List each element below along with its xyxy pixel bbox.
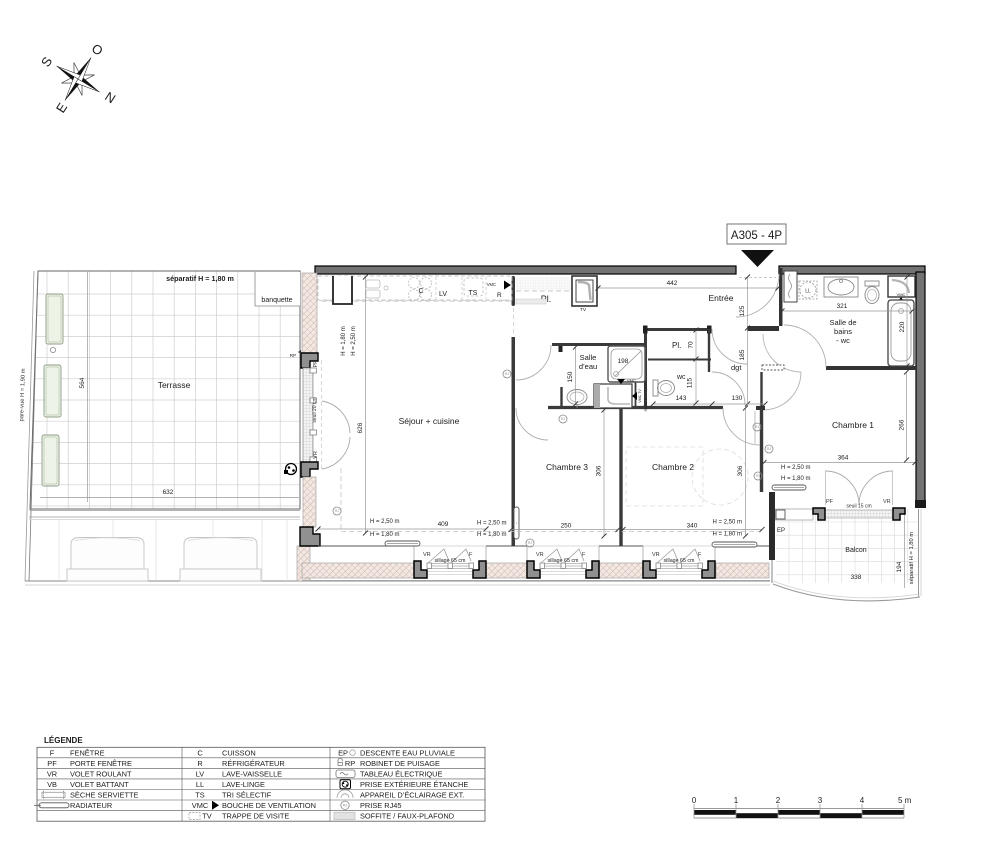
svg-text:150: 150 <box>567 371 574 382</box>
svg-text:Séjour + cuisine: Séjour + cuisine <box>399 416 460 426</box>
svg-text:340: 340 <box>687 523 698 530</box>
svg-text:RADIATEUR: RADIATEUR <box>70 801 112 810</box>
svg-text:198: 198 <box>618 358 629 365</box>
svg-text:sillage 65 cm: sillage 65 cm <box>435 558 466 564</box>
svg-text:VMC TV: VMC TV <box>638 389 642 403</box>
svg-text:TS: TS <box>195 791 205 800</box>
svg-text:220: 220 <box>899 321 906 332</box>
svg-text:Balcon: Balcon <box>845 547 867 554</box>
svg-text:Salle de: Salle de <box>829 318 856 327</box>
svg-text:RJ: RJ <box>343 804 347 808</box>
svg-text:RJ: RJ <box>767 447 771 451</box>
svg-text:409: 409 <box>438 521 449 528</box>
svg-text:TS: TS <box>469 290 478 297</box>
svg-text:séparatif H = 1,80 m: séparatif H = 1,80 m <box>166 274 234 283</box>
svg-text:LAVE-VAISSELLE: LAVE-VAISSELLE <box>222 770 282 779</box>
svg-text:TRI SÉLECTIF: TRI SÉLECTIF <box>222 791 272 800</box>
svg-text:115: 115 <box>687 377 694 388</box>
svg-text:Entrée: Entrée <box>708 293 733 303</box>
svg-text:niche H = 0,90m: niche H = 0,90m <box>643 380 648 411</box>
svg-text:RP: RP <box>345 759 355 768</box>
svg-text:H = 2,50 m: H = 2,50 m <box>781 465 811 471</box>
svg-text:R: R <box>197 759 202 768</box>
svg-text:C: C <box>418 288 423 295</box>
svg-text:TRAPPE DE VISITE: TRAPPE DE VISITE <box>222 812 289 821</box>
svg-text:266: 266 <box>899 419 906 430</box>
svg-text:VR: VR <box>536 552 544 558</box>
svg-text:SOFFITE / FAUX-PLAFOND: SOFFITE / FAUX-PLAFOND <box>360 812 454 821</box>
svg-text:sillage 65 cm: sillage 65 cm <box>548 558 580 564</box>
svg-text:2: 2 <box>776 796 781 805</box>
svg-text:H = 2,50 m: H = 2,50 m <box>713 520 743 526</box>
svg-text:SÈCHE SERVIETTE: SÈCHE SERVIETTE <box>70 791 139 800</box>
svg-text:PF: PF <box>47 759 57 768</box>
svg-text:PF: PF <box>826 499 834 505</box>
svg-text:Chambre 1: Chambre 1 <box>832 420 874 430</box>
svg-text:185: 185 <box>739 349 746 360</box>
svg-text:RÉFRIGÉRATEUR: RÉFRIGÉRATEUR <box>222 759 285 768</box>
svg-text:RJ: RJ <box>528 541 532 545</box>
svg-text:C: C <box>197 748 203 757</box>
svg-text:DESCENTE EAU PLUVIALE: DESCENTE EAU PLUVIALE <box>360 748 455 757</box>
svg-text:APPAREIL D’ÉCLAIRAGE EXT.: APPAREIL D’ÉCLAIRAGE EXT. <box>360 791 464 800</box>
svg-text:194: 194 <box>896 561 903 572</box>
svg-text:A305 - 4P: A305 - 4P <box>731 230 782 242</box>
svg-text:321: 321 <box>837 303 848 310</box>
svg-text:Pl.: Pl. <box>672 341 681 350</box>
svg-text:H = 2,50 m: H = 2,50 m <box>477 521 507 527</box>
svg-text:d’eau: d’eau <box>579 362 597 371</box>
svg-text:632: 632 <box>163 489 174 496</box>
svg-text:RJ: RJ <box>561 417 565 421</box>
svg-text:PRISE RJ45: PRISE RJ45 <box>360 801 402 810</box>
svg-text:364: 364 <box>838 455 849 462</box>
svg-text:RP: RP <box>290 353 296 358</box>
svg-text:H = 1,80 m: H = 1,80 m <box>370 532 400 538</box>
svg-text:PF: PF <box>313 360 319 368</box>
svg-text:442: 442 <box>667 280 678 287</box>
svg-text:626: 626 <box>357 422 364 433</box>
svg-text:RJ: RJ <box>756 474 760 478</box>
svg-text:VMC: VMC <box>897 292 906 297</box>
svg-text:VR: VR <box>423 552 431 558</box>
svg-text:LL: LL <box>805 289 811 295</box>
svg-text:séparatif H = 1,80 m: séparatif H = 1,80 m <box>909 532 915 585</box>
svg-text:4: 4 <box>860 796 865 805</box>
svg-text:LV: LV <box>439 291 447 298</box>
svg-text:LL: LL <box>196 780 204 789</box>
svg-text:F: F <box>50 748 55 757</box>
svg-text:H = 1,80 m: H = 1,80 m <box>341 326 347 356</box>
svg-text:3: 3 <box>818 796 823 805</box>
svg-text:BOUCHE DE VENTILATION: BOUCHE DE VENTILATION <box>222 801 316 810</box>
svg-text:PORTE FENÊTRE: PORTE FENÊTRE <box>70 759 132 768</box>
svg-text:LAVE-LINGE: LAVE-LINGE <box>222 780 265 789</box>
svg-text:H = 2,50 m: H = 2,50 m <box>370 519 400 525</box>
svg-text:5 m: 5 m <box>898 796 912 805</box>
svg-text:H = 1,80 m: H = 1,80 m <box>477 532 507 538</box>
svg-text:H = 1,80 m: H = 1,80 m <box>781 476 811 482</box>
svg-text:0: 0 <box>692 796 697 805</box>
svg-text:RJ: RJ <box>335 509 339 513</box>
svg-text:- wc: - wc <box>836 336 850 345</box>
svg-text:VR: VR <box>47 770 57 779</box>
svg-text:H = 1,80 m: H = 1,80 m <box>713 532 743 538</box>
svg-text:EP: EP <box>338 748 348 757</box>
svg-text:125: 125 <box>739 305 746 316</box>
svg-text:Chambre 2: Chambre 2 <box>652 462 694 472</box>
svg-text:VOLET BATTANT: VOLET BATTANT <box>70 780 129 789</box>
svg-text:VMC: VMC <box>192 801 209 810</box>
svg-text:TV: TV <box>202 812 212 821</box>
svg-text:H = 2,50 m: H = 2,50 m <box>351 326 357 356</box>
svg-text:VR: VR <box>652 552 660 558</box>
svg-text:Salle: Salle <box>580 353 597 362</box>
svg-text:306: 306 <box>596 465 603 476</box>
svg-text:Chambre 3: Chambre 3 <box>546 462 588 472</box>
svg-text:FENÊTRE: FENÊTRE <box>70 748 105 757</box>
svg-text:1: 1 <box>734 796 739 805</box>
svg-text:Terrasse: Terrasse <box>158 380 191 390</box>
svg-text:306: 306 <box>737 465 744 476</box>
svg-text:EP: EP <box>777 528 785 534</box>
svg-text:338: 338 <box>851 574 862 581</box>
svg-text:VR: VR <box>313 451 319 459</box>
svg-text:VB: VB <box>47 780 57 789</box>
svg-text:TV: TV <box>580 307 587 313</box>
svg-text:LÉGENDE: LÉGENDE <box>44 736 83 745</box>
svg-text:143: 143 <box>676 395 687 402</box>
svg-text:RJ: RJ <box>755 425 759 429</box>
svg-text:RJ: RJ <box>505 372 509 376</box>
svg-text:VMC: VMC <box>627 378 636 383</box>
svg-text:PRISE EXTÉRIEURE ÉTANCHE: PRISE EXTÉRIEURE ÉTANCHE <box>360 780 468 789</box>
svg-text:banquette: banquette <box>261 297 292 304</box>
svg-text:dgt: dgt <box>731 363 742 372</box>
svg-text:seuil 20 cm: seuil 20 cm <box>312 397 318 422</box>
svg-text:wc: wc <box>676 374 686 381</box>
svg-text:bains: bains <box>834 327 852 336</box>
svg-text:VMC: VMC <box>487 282 496 287</box>
svg-text:TABLEAU ÉLECTRIQUE: TABLEAU ÉLECTRIQUE <box>360 770 442 779</box>
svg-text:564: 564 <box>79 377 86 388</box>
svg-text:LV: LV <box>196 770 205 779</box>
svg-text:70: 70 <box>688 341 695 349</box>
svg-text:seuil 15 cm: seuil 15 cm <box>846 504 871 510</box>
svg-text:R: R <box>497 292 502 299</box>
svg-text:VOLET ROULANT: VOLET ROULANT <box>70 770 132 779</box>
svg-text:VR: VR <box>883 499 891 505</box>
svg-text:250: 250 <box>561 523 572 530</box>
svg-text:CUISSON: CUISSON <box>222 748 256 757</box>
svg-text:130: 130 <box>732 395 743 402</box>
svg-text:ROBINET DE PUISAGE: ROBINET DE PUISAGE <box>360 759 440 768</box>
svg-text:sillage 65 cm: sillage 65 cm <box>664 558 696 564</box>
